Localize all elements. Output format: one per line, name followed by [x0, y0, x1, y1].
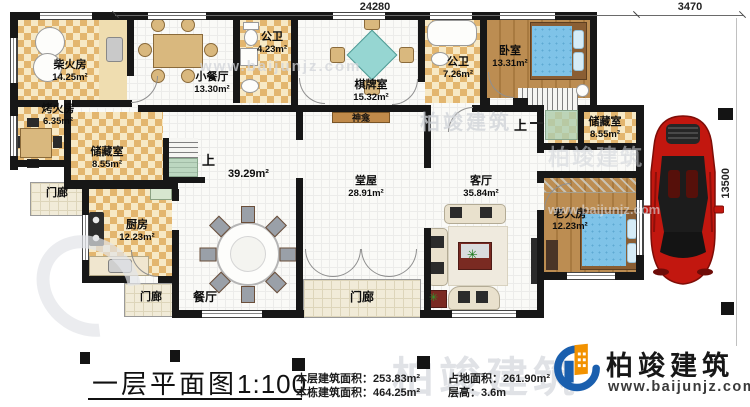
sink-symbol: [106, 37, 123, 62]
chair-symbol: [280, 248, 297, 262]
wall-segment: [578, 105, 638, 112]
window: [452, 310, 516, 318]
wall-segment: [296, 105, 303, 140]
wall-segment: [537, 105, 544, 153]
wall-segment: [138, 105, 424, 112]
wall-segment: [480, 12, 487, 106]
stat-floor-area: 本层建筑面积：253.83m²: [296, 372, 420, 386]
toilet-symbol: [244, 29, 258, 46]
stool-symbol: [576, 84, 589, 97]
bed-mattress-symbol: [532, 26, 572, 76]
wall-segment: [537, 171, 638, 178]
stool-symbol: [181, 69, 195, 83]
bathtub-symbol: [427, 20, 477, 46]
dimension-right-height: 13500: [720, 168, 732, 199]
window: [82, 215, 89, 260]
wall-segment: [537, 210, 544, 318]
room-label-bathroom-1: 公卫4.23m²: [257, 32, 287, 55]
wall-segment: [172, 310, 202, 318]
dining-table-symbol: [153, 34, 203, 68]
washbasin-symbol: [241, 79, 259, 93]
wall-segment: [172, 189, 179, 201]
window: [500, 12, 555, 20]
wall-segment: [291, 12, 298, 105]
pillow-symbol: [573, 30, 584, 49]
outside-area: [544, 280, 644, 320]
title-underline: [88, 398, 302, 400]
cushion-symbol: [431, 262, 444, 274]
stairs-up-left-label: 上: [202, 150, 215, 169]
wall-segment: [537, 272, 567, 280]
outside-area: [82, 283, 124, 320]
stool-symbol: [204, 43, 218, 57]
room-label-living-room: 客厅35.84m²: [463, 176, 498, 199]
stool-symbol: [181, 18, 195, 32]
logo-mark-icon: [552, 342, 602, 403]
window: [567, 272, 615, 280]
shrine-label: 神龛: [333, 113, 389, 123]
room-label-storage-right: 储藏室8.55m²: [589, 117, 622, 140]
chair-symbol: [53, 136, 62, 148]
room-label-small-dining: 小餐厅13.30m²: [194, 72, 229, 95]
logo-company-name: 柏竣建筑: [606, 344, 734, 383]
column-marker: [80, 352, 90, 364]
stool-symbol: [138, 43, 152, 57]
pillow-symbol: [573, 52, 584, 71]
dimension-top-width: 24280: [340, 1, 410, 13]
round-table-inner: [230, 236, 266, 272]
wall-segment: [172, 230, 179, 318]
logo-website: www.baijunjz.com: [608, 379, 750, 395]
wall-segment: [262, 310, 304, 318]
stats-column-2: 占地面积：261.90m² 层高：3.6m: [448, 372, 550, 400]
window: [40, 12, 92, 20]
stairs-right-glass: [545, 110, 578, 140]
chair-symbol: [399, 47, 414, 63]
porch-center-label: 门廊: [350, 288, 374, 305]
outside-area: [597, 10, 642, 107]
wall-segment: [578, 108, 584, 146]
wall-segment: [472, 105, 537, 112]
chair-symbol: [330, 47, 345, 63]
cabinet-symbol: [546, 240, 558, 270]
window: [10, 116, 18, 156]
room-label-chess-room: 棋牌室15.32m²: [353, 80, 388, 103]
window: [148, 12, 206, 20]
wall-segment: [296, 178, 303, 318]
column-marker: [170, 350, 180, 362]
car-illustration: [642, 112, 724, 290]
chair-symbol: [200, 248, 217, 262]
chair-symbol: [241, 206, 255, 223]
chair-symbol: [241, 286, 255, 303]
sofa-symbol: [448, 286, 500, 310]
dimension-line-top-right: [637, 15, 743, 16]
room-label-storage-left: 储藏室8.55m²: [91, 147, 124, 170]
sink-symbol: [108, 259, 132, 273]
bed-mattress-symbol: [582, 214, 626, 266]
dimension-line-top: [115, 15, 637, 16]
wall-segment: [233, 12, 240, 103]
column-marker: [721, 302, 734, 315]
cushion-symbol: [458, 291, 470, 303]
window: [430, 12, 472, 20]
shower-tray-symbol: [240, 48, 258, 66]
wall-segment: [537, 171, 544, 183]
stats-column-1: 本层建筑面积：253.83m² 本栋建筑面积：464.25m²: [296, 372, 420, 400]
cushion-symbol: [480, 207, 492, 218]
wall-segment: [418, 12, 425, 82]
room-label-bedroom: 卧室13.31m²: [492, 46, 527, 69]
window: [636, 200, 644, 255]
plant-symbol: ✳: [429, 291, 443, 305]
table-symbol: [20, 128, 52, 158]
wall-segment: [424, 105, 431, 168]
room-label-main-hall: 堂屋28.91m²: [348, 176, 383, 199]
cushion-symbol: [450, 207, 462, 218]
dining-hall-label: 餐厅: [193, 288, 217, 305]
stove-symbol: [89, 212, 104, 246]
open-area-label: 39.29m²: [228, 168, 269, 180]
column-marker: [718, 108, 733, 120]
wall-segment: [163, 177, 205, 183]
wall-segment: [127, 12, 134, 76]
stat-land-area: 占地面积：261.90m²: [448, 372, 550, 386]
stat-building-area: 本栋建筑面积：464.25m²: [296, 386, 420, 400]
plant-symbol: ✳: [467, 248, 483, 262]
window: [10, 38, 18, 83]
dimension-top-right-width: 3470: [660, 1, 720, 13]
stairs-up-right-label: 上: [514, 115, 527, 134]
column-marker: [417, 356, 430, 369]
shrine-shelf: 神龛: [332, 112, 390, 123]
stool-symbol: [151, 18, 165, 32]
room-label-kitchen: 厨房12.23m²: [119, 220, 154, 243]
wall-segment: [82, 276, 130, 283]
wall-segment: [10, 160, 70, 167]
wall-segment: [72, 100, 132, 107]
porch-left-label: 门廊: [46, 184, 68, 200]
drawing-title-text: 一层平面图: [92, 369, 237, 399]
wall-segment: [64, 180, 178, 189]
window: [202, 310, 262, 318]
porch-bottom-left-label: 门廊: [140, 288, 162, 304]
wall-segment: [544, 143, 638, 150]
room-label-bathroom-2: 公卫7.26m²: [443, 57, 473, 80]
floor-plan-sheet: 神龛 ✳ ✳ 柴火房14.25m² 小餐厅13.30m² 公卫4.23m² 棋牌…: [0, 0, 750, 407]
stairs-left-glass: [166, 158, 198, 177]
cushion-symbol: [431, 236, 444, 248]
wall-segment: [420, 310, 452, 318]
chair-symbol: [27, 118, 39, 127]
drawing-title: 一层平面图1:100: [92, 364, 307, 401]
room-label-elder-room: 老人房12.23m²: [552, 209, 587, 232]
room-label-heating-room: 烤火房6.35m²: [42, 104, 75, 127]
cushion-symbol: [476, 291, 488, 303]
stat-storey-height: 层高：3.6m: [448, 386, 550, 400]
wall-segment: [590, 12, 597, 106]
brand-logo: 柏竣建筑 www.baijunjz.com: [552, 340, 748, 404]
up-direction-line: [530, 122, 543, 124]
dimension-line-right: [736, 18, 737, 346]
window: [333, 12, 385, 20]
room-label-firewood: 柴火房14.25m²: [52, 60, 87, 83]
